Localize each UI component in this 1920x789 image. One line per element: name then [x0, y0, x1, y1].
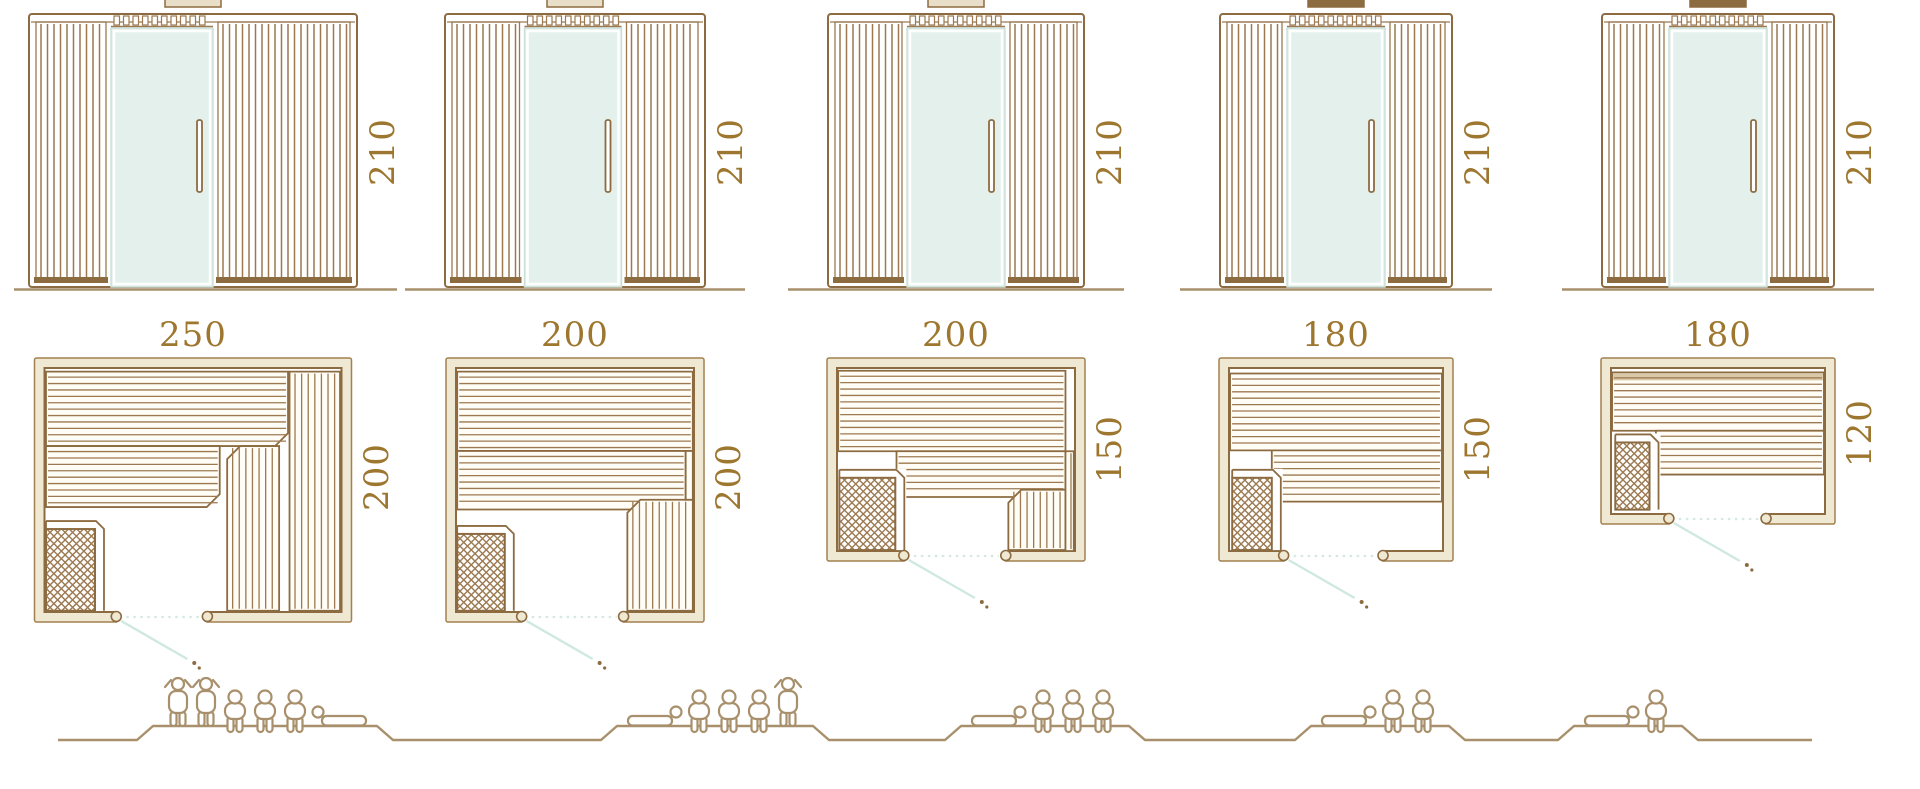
elevation-height-label: 210: [1843, 118, 1877, 186]
sauna-5-floor-plan: [1548, 358, 1835, 572]
plan-width-label: 200: [541, 318, 609, 352]
sauna-1-floor-plan: [0, 358, 352, 670]
diagram-art: [0, 0, 1920, 789]
elevation-height-label: 210: [714, 118, 748, 186]
plan-width-label: 200: [922, 318, 990, 352]
plan-depth-label: 200: [360, 443, 394, 511]
sauna-5-front-elevation: [1562, 0, 1874, 290]
sauna-2-floor-plan: [380, 358, 704, 670]
sauna-4-floor-plan: [1160, 358, 1453, 609]
capacity-group-5: [1585, 691, 1666, 733]
capacity-row: [58, 678, 1812, 740]
elevation-height-label: 210: [1461, 118, 1495, 186]
plan-width-label: 180: [1302, 318, 1370, 352]
sauna-3-front-elevation: [788, 0, 1124, 290]
plan-depth-label: 150: [1461, 415, 1495, 483]
plan-width-label: 250: [159, 318, 227, 352]
plan-width-label: 180: [1684, 318, 1752, 352]
elevation-height-label: 210: [1093, 118, 1127, 186]
plan-depth-label: 120: [1843, 399, 1877, 467]
sauna-4-front-elevation: [1180, 0, 1492, 290]
plan-depth-label: 200: [712, 443, 746, 511]
sauna-3-floor-plan: [767, 358, 1085, 609]
sauna-2-front-elevation: [405, 0, 745, 290]
capacity-group-1: [165, 678, 366, 732]
plan-depth-label: 150: [1093, 415, 1127, 483]
sauna-1-front-elevation: [14, 0, 397, 290]
capacity-group-2: [628, 678, 801, 732]
elevation-height-label: 210: [366, 118, 400, 186]
sauna-size-comparison-diagram: 250 200 210 200 200 210 200 150 210 180 …: [0, 0, 1920, 789]
